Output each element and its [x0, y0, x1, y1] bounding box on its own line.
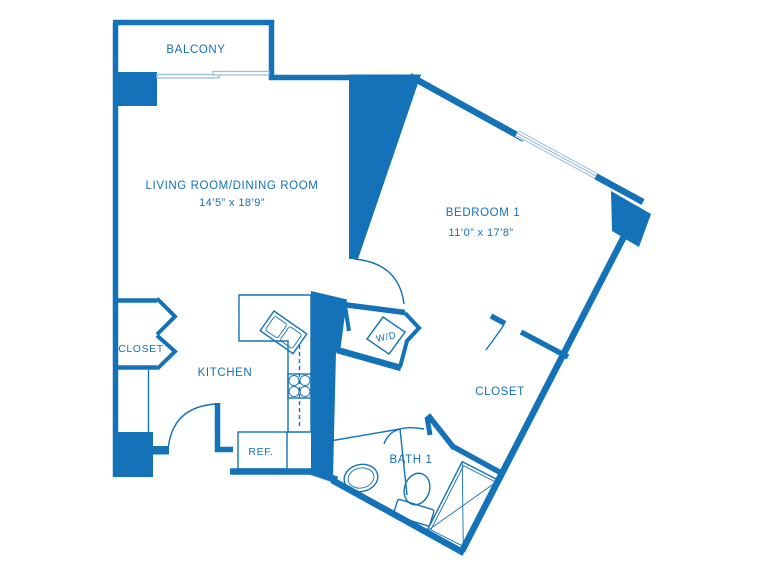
- bedroom-door-arc: [354, 259, 404, 304]
- wall-bedroom-top-left: [410, 76, 524, 139]
- wall-closet-stub: [491, 316, 505, 324]
- wall-wd-side: [400, 341, 407, 367]
- floor-plan: BALCONY LIVING ROOM/DINING ROOM 14’5” x …: [0, 0, 764, 573]
- left-closet-label: CLOSET: [118, 343, 164, 355]
- entry-door-arc: [168, 404, 216, 451]
- kitchen-counter: [239, 295, 311, 432]
- wall-wd-top: [339, 304, 405, 313]
- wall-wedge: [349, 75, 421, 260]
- floor-plan-page: BALCONY LIVING ROOM/DINING ROOM 14’5” x …: [0, 0, 764, 573]
- sliding-door-panel: [157, 75, 219, 79]
- wall-center-band: [311, 291, 347, 477]
- wall-wd-stub: [345, 306, 349, 331]
- wd-bifold-door: [405, 313, 419, 342]
- bath-label: BATH 1: [389, 454, 432, 466]
- wall-wd-bath: [337, 350, 401, 368]
- wall-fills: [113, 72, 651, 477]
- bath-door-stub: [427, 417, 430, 435]
- bedroom-closet-label: CLOSET: [475, 386, 525, 398]
- living-room-dims: 14’5” x 18’9”: [199, 197, 265, 209]
- wall-entry-stub: [153, 446, 169, 455]
- bedroom-label: BEDROOM 1: [446, 207, 520, 219]
- living-room-label: LIVING ROOM/DINING ROOM: [146, 180, 319, 192]
- closet-door-leaf: [486, 325, 504, 350]
- kitchen: REF. KITCHEN: [198, 295, 311, 469]
- wall-balcony-block: [113, 72, 157, 106]
- sliding-door-panel: [213, 72, 269, 76]
- balcony-label: BALCONY: [166, 44, 225, 56]
- window-line: [516, 135, 595, 178]
- kitchen-label: KITCHEN: [198, 367, 253, 379]
- bedroom-dims: 11’0” x 17’8”: [449, 227, 514, 239]
- living-room: LIVING ROOM/DINING ROOM 14’5” x 18’9”: [146, 78, 355, 210]
- bedroom-closet: CLOSET: [428, 316, 568, 474]
- toilet-tank: [393, 499, 434, 526]
- closet-bifold-doors: [157, 299, 175, 370]
- window-line: [517, 133, 596, 176]
- ref-label: REF.: [248, 446, 273, 458]
- bathroom: BATH 1: [330, 417, 499, 550]
- laundry-closet: W/D: [337, 304, 419, 368]
- wall-closet-top: [521, 332, 568, 357]
- left-closet: CLOSET: [113, 299, 175, 370]
- wall-entry-block: [113, 432, 153, 477]
- window-line: [518, 131, 597, 174]
